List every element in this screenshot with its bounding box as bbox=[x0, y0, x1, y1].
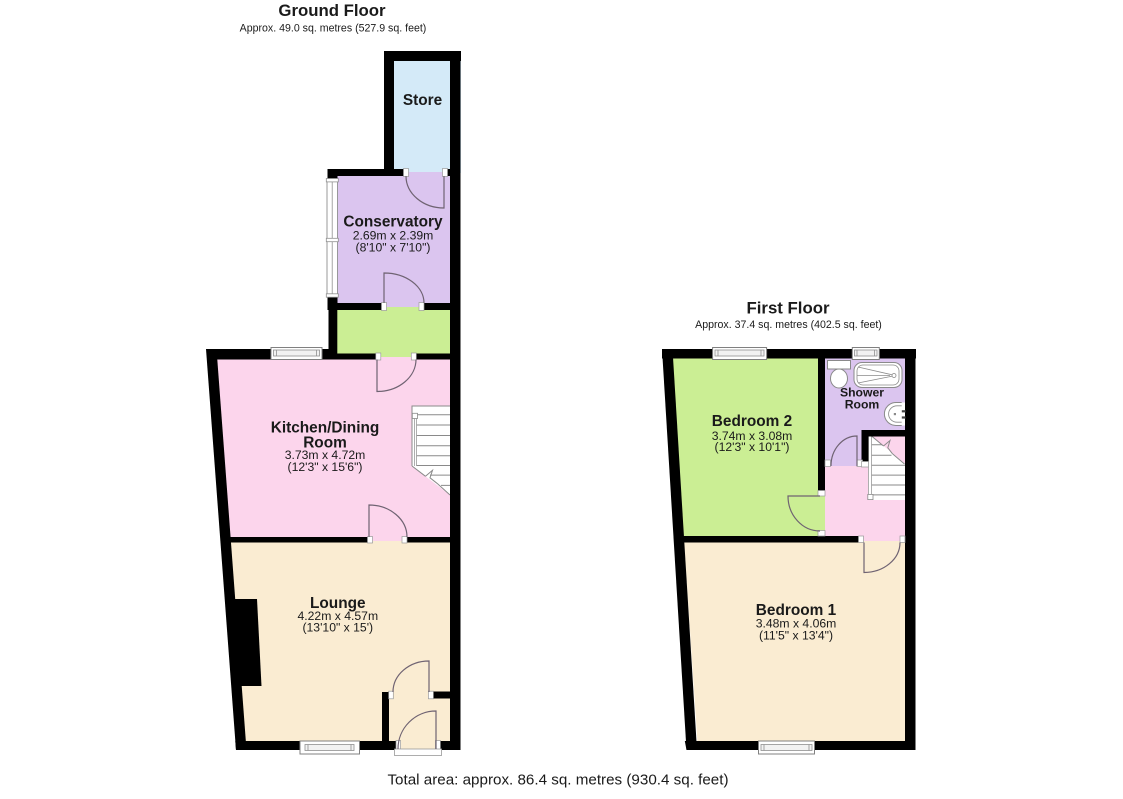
svg-text:(11'5" x 13'4"): (11'5" x 13'4") bbox=[759, 629, 833, 643]
svg-text:(8'10" x 7'10"): (8'10" x 7'10") bbox=[356, 241, 431, 255]
svg-text:Approx. 37.4 sq. metres (402.5: Approx. 37.4 sq. metres (402.5 sq. feet) bbox=[695, 319, 882, 331]
svg-text:Room: Room bbox=[845, 398, 880, 412]
svg-text:(12'3" x 15'6"): (12'3" x 15'6") bbox=[288, 460, 363, 474]
svg-text:First Floor: First Floor bbox=[747, 299, 830, 318]
svg-text:(12'3" x 10'1"): (12'3" x 10'1") bbox=[715, 440, 790, 454]
svg-text:Ground Floor: Ground Floor bbox=[278, 1, 386, 20]
svg-text:(13'10" x 15'): (13'10" x 15') bbox=[302, 621, 373, 635]
svg-text:Total area: approx. 86.4 sq. m: Total area: approx. 86.4 sq. metres (930… bbox=[387, 771, 728, 788]
svg-text:Bedroom 2: Bedroom 2 bbox=[712, 413, 792, 430]
svg-text:Approx. 49.0 sq. metres (527.9: Approx. 49.0 sq. metres (527.9 sq. feet) bbox=[240, 22, 427, 34]
svg-text:Store: Store bbox=[403, 92, 443, 109]
